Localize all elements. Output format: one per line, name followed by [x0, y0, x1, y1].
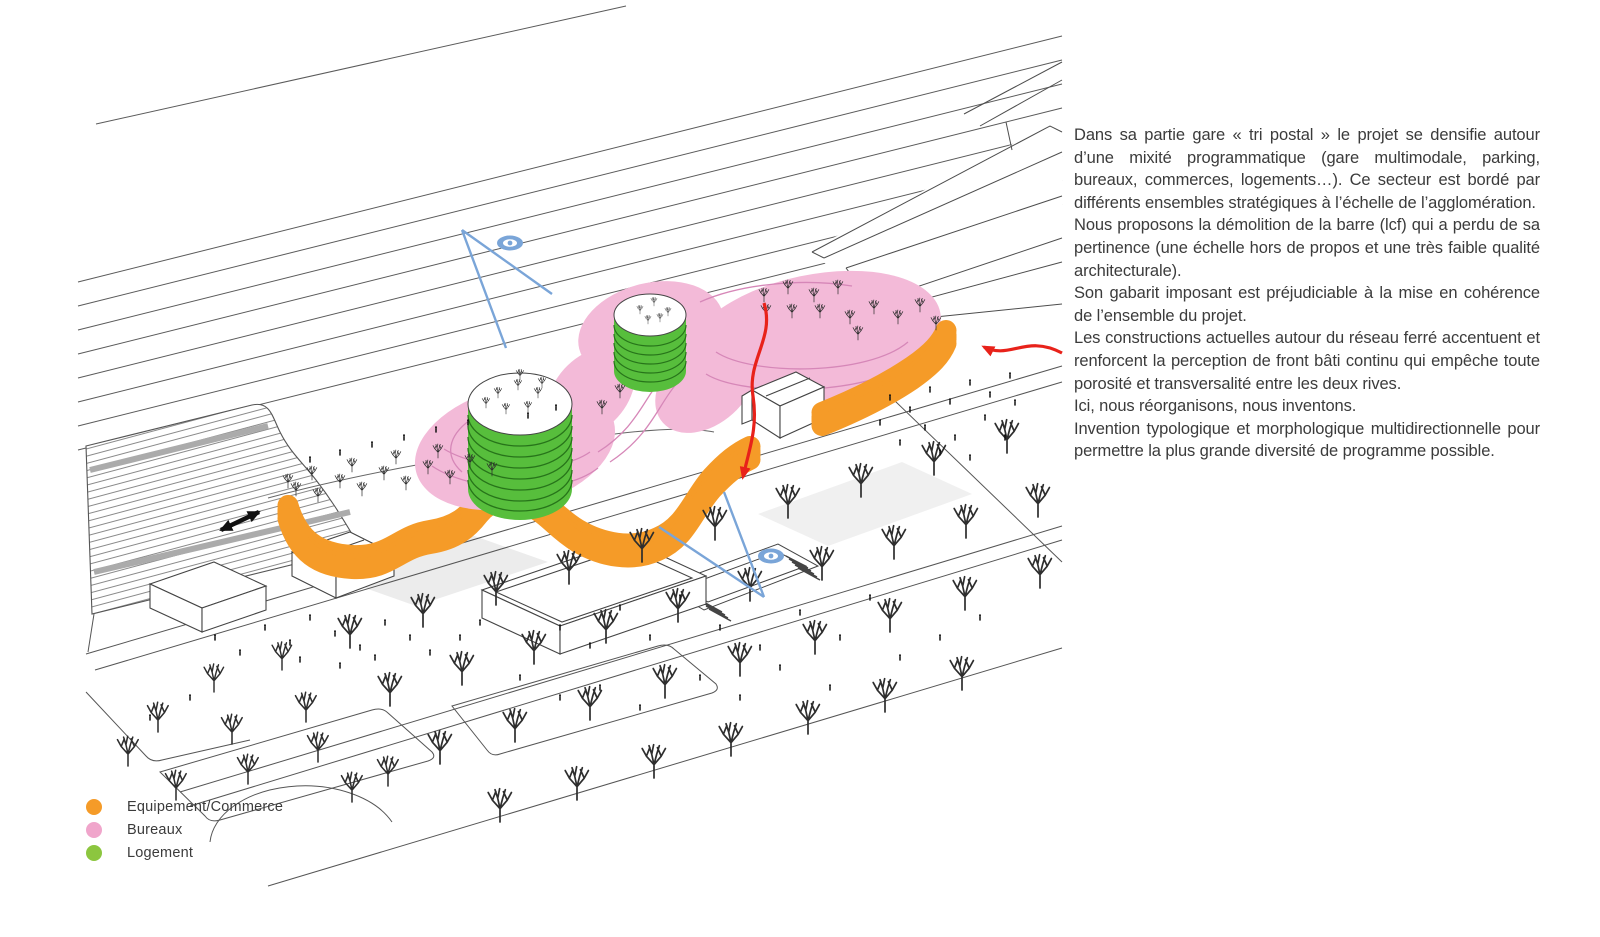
- paragraph: Son gabarit imposant est préjudiciable à…: [1074, 282, 1540, 327]
- paragraph: Dans sa partie gare « tri postal » le pr…: [1074, 124, 1540, 214]
- project-description: Dans sa partie gare « tri postal » le pr…: [1074, 124, 1540, 463]
- pink-dot-icon: [86, 822, 102, 838]
- eye-icon-2: [758, 549, 784, 564]
- eye-icon-1: [497, 236, 523, 251]
- legend-label: Equipement/Commerce: [127, 799, 283, 815]
- legend-label: Bureaux: [127, 822, 182, 838]
- paragraph: Nous proposons la démolition de la barre…: [1074, 214, 1540, 282]
- paragraph: Les constructions actuelles autour du ré…: [1074, 327, 1540, 395]
- paragraph: Ici, nous réorganisons, nous inventons.: [1074, 395, 1540, 418]
- logement-tower-large: [468, 373, 572, 520]
- legend-item-bureaux: Bureaux: [86, 818, 283, 841]
- legend-item-equipement-commerce: Equipement/Commerce: [86, 795, 283, 818]
- presentation-board: Dans sa partie gare « tri postal » le pr…: [0, 0, 1600, 932]
- axonometric-illustration: [0, 0, 1070, 932]
- logement-tower-small: [614, 294, 686, 392]
- legend-label: Logement: [127, 845, 193, 861]
- green-dot-icon: [86, 845, 102, 861]
- site-axonometric-diagram: [0, 0, 1070, 932]
- orange-dot-icon: [86, 799, 102, 815]
- legend-item-logement: Logement: [86, 841, 283, 864]
- paragraph: Invention typologique et morphologique m…: [1074, 418, 1540, 463]
- program-legend: Equipement/Commerce Bureaux Logement: [86, 795, 283, 864]
